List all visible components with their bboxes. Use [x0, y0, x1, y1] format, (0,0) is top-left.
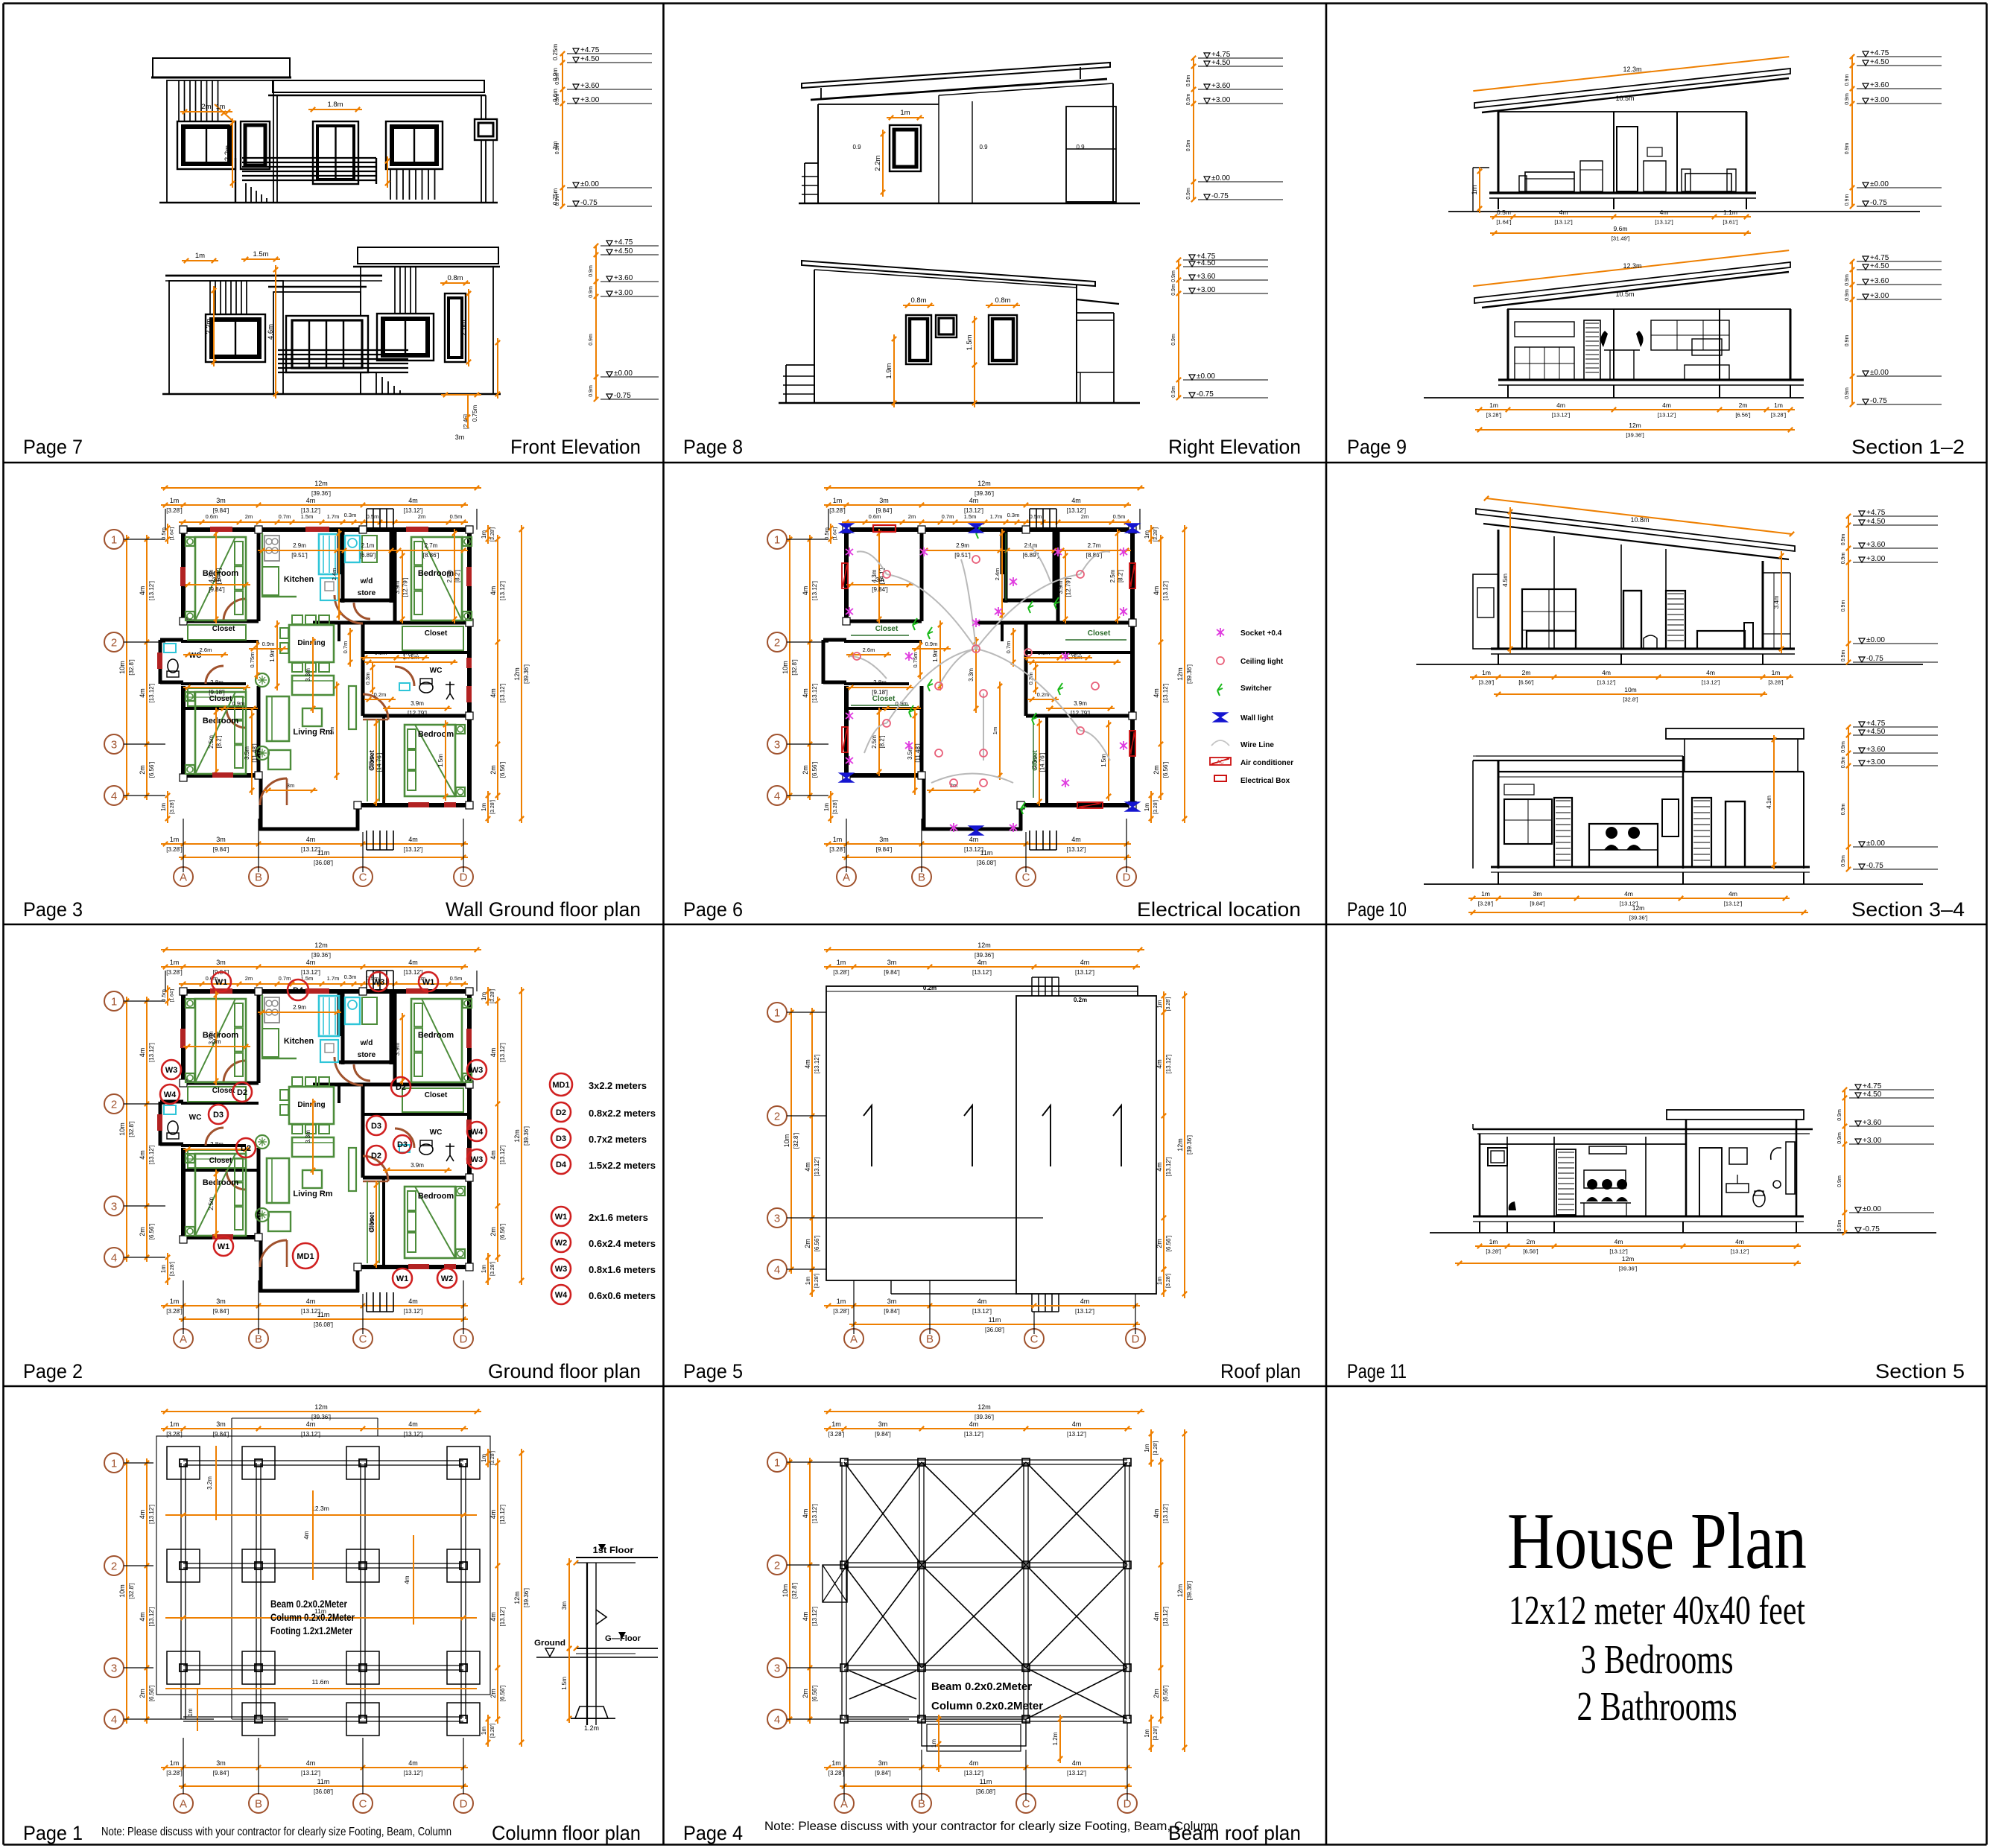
svg-text:[14.76']: [14.76']	[1039, 753, 1045, 772]
svg-text:0.5m: 0.5m	[1030, 513, 1042, 520]
svg-text:Living Rm: Living Rm	[293, 1190, 332, 1198]
svg-text:0.9m: 0.9m	[1186, 188, 1191, 200]
svg-text:0.9m: 0.9m	[1837, 1132, 1842, 1144]
svg-text:2m: 2m	[139, 1689, 146, 1698]
svg-text:A: A	[180, 871, 187, 883]
svg-text:[9.84']: [9.84']	[884, 969, 900, 976]
svg-text:10.5m: 10.5m	[1615, 95, 1634, 102]
svg-text:0.9m: 0.9m	[1841, 741, 1846, 753]
svg-text:[13.12']: [13.12']	[811, 581, 818, 600]
svg-text:1m: 1m	[481, 803, 487, 811]
svg-text:0.7m: 0.7m	[1005, 641, 1012, 654]
svg-text:1m: 1m	[1156, 1000, 1163, 1008]
svg-text:3m: 3m	[1533, 890, 1542, 898]
svg-text:Ground: Ground	[534, 1639, 565, 1648]
svg-text:Page 3: Page 3	[23, 898, 83, 921]
svg-text:0.8m: 0.8m	[995, 296, 1010, 305]
svg-text:0.3m: 0.3m	[1007, 512, 1020, 518]
svg-text:[13.12']: [13.12']	[404, 1770, 423, 1776]
svg-text:w/d: w/d	[360, 577, 373, 585]
svg-text:[36.08']: [36.08']	[985, 1327, 1004, 1333]
svg-text:0.9: 0.9	[979, 144, 988, 150]
svg-text:Bedroom: Bedroom	[418, 730, 454, 739]
svg-text:1.5x2.2 meters: 1.5x2.2 meters	[589, 1160, 656, 1171]
svg-text:3m: 3m	[878, 1759, 888, 1767]
svg-text:4m: 4m	[139, 586, 146, 596]
svg-text:B: B	[918, 871, 925, 883]
svg-text:0.7x2 meters: 0.7x2 meters	[589, 1134, 647, 1145]
svg-text:A: A	[843, 871, 850, 883]
svg-text:Note: Please discuss with your: Note: Please discuss with your contracto…	[764, 1819, 1217, 1833]
svg-text:4m: 4m	[1153, 586, 1160, 596]
svg-text:12m: 12m	[1176, 1584, 1184, 1598]
svg-text:[13.12']: [13.12']	[1162, 684, 1169, 703]
svg-text:[12.79']: [12.79']	[1065, 578, 1071, 597]
svg-text:B: B	[926, 1333, 934, 1345]
svg-text:Closet: Closet	[875, 625, 899, 633]
svg-text:4.5m: 4.5m	[368, 755, 375, 769]
svg-text:D2: D2	[396, 1083, 406, 1092]
svg-text:3m: 3m	[455, 434, 465, 441]
svg-text:[32.8']: [32.8']	[1623, 696, 1638, 703]
svg-text:+4.75: +4.75	[580, 46, 600, 54]
svg-text:1.5m: 1.5m	[964, 513, 977, 520]
svg-text:D4: D4	[293, 986, 304, 995]
svg-text:0.2m: 0.2m	[923, 985, 937, 991]
svg-text:2.4m: 2.4m	[331, 568, 338, 581]
svg-text:4m: 4m	[408, 1759, 418, 1767]
svg-text:0.9m: 0.9m	[1171, 270, 1176, 282]
svg-text:4m: 4m	[1662, 401, 1671, 409]
svg-text:1m: 1m	[170, 836, 180, 843]
svg-text:Kitchen: Kitchen	[284, 575, 314, 584]
svg-text:[12.79']: [12.79']	[402, 578, 408, 597]
svg-text:Closet: Closet	[872, 695, 896, 703]
svg-text:W3: W3	[555, 1265, 568, 1274]
svg-text:[6.56']: [6.56']	[1162, 762, 1169, 778]
svg-text:A: A	[850, 1333, 858, 1345]
svg-text:0.9m: 0.9m	[1171, 386, 1176, 398]
svg-text:2.1m: 2.1m	[1024, 542, 1038, 549]
svg-text:11.6m: 11.6m	[312, 1678, 329, 1686]
svg-text:0.8m: 0.8m	[447, 274, 463, 282]
svg-text:0.2m: 0.2m	[1074, 997, 1087, 1003]
svg-text:-0.75: -0.75	[1863, 1225, 1880, 1233]
svg-text:[13.12']: [13.12']	[1067, 846, 1086, 853]
svg-text:+3.00: +3.00	[1866, 758, 1886, 766]
svg-text:2m: 2m	[418, 513, 425, 520]
svg-text:2.5m: 2.5m	[1109, 569, 1116, 582]
svg-text:3x2.2 meters: 3x2.2 meters	[589, 1080, 647, 1091]
svg-text:1.5m: 1.5m	[966, 334, 974, 350]
svg-text:0.7m: 0.7m	[279, 975, 291, 982]
svg-text:12.3m: 12.3m	[311, 1505, 329, 1512]
svg-text:3.9m: 3.9m	[1074, 700, 1087, 707]
svg-text:2.7m: 2.7m	[1088, 542, 1101, 549]
svg-text:[13.12']: [13.12']	[148, 581, 155, 600]
svg-text:0.9m: 0.9m	[589, 265, 594, 277]
svg-text:4m: 4m	[1706, 669, 1715, 676]
svg-text:4m: 4m	[306, 1420, 316, 1428]
svg-text:+3.60: +3.60	[1863, 1119, 1882, 1127]
svg-text:1m: 1m	[170, 959, 180, 966]
svg-text:Closet: Closet	[425, 629, 448, 638]
svg-text:Electrical Box: Electrical Box	[1240, 777, 1290, 785]
svg-text:4m: 4m	[489, 1150, 497, 1160]
svg-text:Closet: Closet	[212, 625, 235, 633]
svg-text:2.9m: 2.9m	[293, 1004, 306, 1011]
svg-text:Socket +0.4: Socket +0.4	[1240, 629, 1282, 638]
svg-text:[3.28']: [3.28']	[1153, 1727, 1159, 1741]
svg-text:[1.64']: [1.64']	[170, 989, 175, 1003]
svg-text:12m: 12m	[314, 480, 328, 487]
svg-text:[39.36']: [39.36']	[1186, 1135, 1193, 1155]
svg-text:[3.28']: [3.28']	[166, 1431, 183, 1438]
svg-text:0.3m: 0.3m	[344, 512, 357, 518]
svg-text:[3.28']: [3.28']	[1771, 412, 1786, 419]
svg-text:3: 3	[111, 1662, 117, 1674]
svg-text:0.9m: 0.9m	[589, 385, 594, 397]
svg-text:+3.00: +3.00	[1866, 555, 1886, 563]
svg-text:4m: 4m	[1615, 1238, 1623, 1245]
svg-text:[9.84']: [9.84']	[213, 1770, 229, 1776]
svg-text:3m: 3m	[878, 1420, 888, 1428]
svg-text:[13.12']: [13.12']	[1597, 679, 1615, 686]
svg-text:4m: 4m	[1556, 401, 1565, 409]
svg-text:1.9m: 1.9m	[932, 649, 939, 662]
svg-text:Closet: Closet	[209, 695, 232, 703]
svg-text:-0.75: -0.75	[1211, 192, 1229, 200]
svg-text:+3.00: +3.00	[580, 96, 600, 104]
svg-text:2m: 2m	[1522, 669, 1531, 676]
svg-text:4m: 4m	[404, 1575, 411, 1584]
svg-text:12m: 12m	[977, 942, 991, 949]
svg-text:1.5m: 1.5m	[301, 513, 314, 520]
svg-text:0.9m: 0.9m	[1841, 855, 1846, 867]
svg-text:4m: 4m	[408, 959, 418, 966]
svg-text:[32.8']: [32.8']	[128, 1121, 135, 1137]
svg-text:2m: 2m	[1156, 1239, 1163, 1248]
svg-text:[11.48']: [11.48']	[914, 743, 921, 762]
svg-text:12.3m: 12.3m	[1623, 66, 1641, 73]
svg-text:3m: 3m	[216, 1420, 226, 1428]
svg-text:[13.12']: [13.12']	[1162, 581, 1169, 600]
svg-text:[13.12']: [13.12']	[814, 1158, 820, 1177]
svg-text:+3.60: +3.60	[1211, 82, 1231, 90]
svg-text:4.5m: 4.5m	[1502, 574, 1509, 587]
svg-text:Kitchen: Kitchen	[284, 1037, 314, 1046]
svg-text:3m: 3m	[212, 1038, 221, 1045]
svg-text:3.5m: 3.5m	[244, 746, 250, 760]
svg-text:0.9m: 0.9m	[1837, 1220, 1842, 1232]
svg-text:0.9m: 0.9m	[262, 641, 275, 647]
svg-text:2m: 2m	[1153, 765, 1160, 775]
svg-text:1.5m: 1.5m	[561, 1677, 568, 1690]
svg-text:W4: W4	[471, 1128, 484, 1137]
svg-text:0.9m: 0.9m	[1841, 600, 1846, 612]
svg-text:4m: 4m	[489, 586, 497, 596]
svg-text:0.5m: 0.5m	[160, 989, 167, 1002]
svg-text:[11.48']: [11.48']	[251, 743, 258, 762]
svg-text:0.9m: 0.9m	[1845, 194, 1850, 206]
svg-text:Page 11: Page 11	[1347, 1360, 1407, 1382]
svg-text:[3.28']: [3.28']	[1153, 527, 1159, 542]
svg-text:1m: 1m	[805, 1277, 811, 1285]
svg-text:1m: 1m	[831, 1420, 841, 1428]
svg-text:A: A	[180, 1797, 187, 1810]
svg-text:4m: 4m	[802, 1509, 809, 1519]
svg-text:[39.36']: [39.36']	[1629, 915, 1647, 921]
svg-text:[13.12']: [13.12']	[1162, 1504, 1169, 1523]
svg-text:3.3m: 3.3m	[305, 1130, 311, 1143]
svg-text:[6.56']: [6.56']	[499, 1224, 506, 1240]
svg-text:[3.28']: [3.28']	[828, 1431, 845, 1438]
svg-text:Bedroom: Bedroom	[418, 1192, 454, 1201]
svg-text:±0.00: ±0.00	[1866, 839, 1885, 848]
svg-text:[9.18']: [9.18']	[209, 689, 225, 696]
svg-text:0.7m: 0.7m	[342, 641, 349, 654]
svg-text:[39.36']: [39.36']	[523, 1588, 530, 1607]
svg-text:2m: 2m	[802, 1689, 809, 1698]
svg-text:[31.49']: [31.49']	[1612, 235, 1629, 242]
svg-text:2: 2	[111, 1098, 117, 1111]
svg-text:1.5m: 1.5m	[1100, 754, 1107, 767]
svg-text:0.9m: 0.9m	[1038, 650, 1051, 656]
svg-text:[9.84']: [9.84']	[876, 846, 893, 853]
svg-text:4m: 4m	[306, 1298, 316, 1305]
svg-text:4m: 4m	[408, 1420, 418, 1428]
svg-text:+4.50: +4.50	[1870, 262, 1889, 270]
svg-text:1.5m: 1.5m	[253, 250, 268, 258]
svg-text:4m: 4m	[139, 1048, 146, 1058]
svg-text:[9.84']: [9.84']	[872, 586, 888, 593]
svg-text:D3: D3	[371, 1122, 381, 1131]
svg-text:[36.08']: [36.08']	[314, 1788, 333, 1795]
svg-text:[9.84']: [9.84']	[213, 846, 229, 853]
svg-text:11m: 11m	[980, 849, 993, 857]
svg-text:3m: 3m	[287, 782, 294, 789]
svg-text:3m: 3m	[887, 959, 897, 966]
svg-text:D: D	[460, 1333, 468, 1345]
svg-text:0.5m: 0.5m	[1497, 209, 1511, 216]
svg-text:Page 7: Page 7	[23, 436, 83, 458]
svg-text:4m: 4m	[306, 836, 316, 843]
svg-text:[8.86']: [8.86']	[423, 552, 440, 559]
svg-text:2: 2	[774, 1110, 780, 1123]
svg-text:4m: 4m	[489, 1048, 497, 1058]
svg-text:4m: 4m	[1072, 1420, 1082, 1428]
svg-text:12m: 12m	[1176, 1138, 1184, 1152]
svg-text:3m: 3m	[216, 836, 226, 843]
svg-text:Note: Please discuss with your: Note: Please discuss with your contracto…	[101, 1826, 451, 1838]
svg-text:B: B	[255, 1797, 262, 1810]
svg-text:4m: 4m	[139, 688, 146, 698]
svg-text:[13.12']: [13.12']	[972, 969, 992, 976]
svg-text:1m: 1m	[1144, 1444, 1150, 1452]
svg-text:W3: W3	[373, 978, 385, 987]
svg-text:[39.36']: [39.36']	[311, 490, 331, 497]
svg-text:4m: 4m	[1072, 1759, 1082, 1767]
svg-text:W1: W1	[555, 1213, 568, 1222]
svg-text:0.5m: 0.5m	[450, 975, 463, 982]
svg-text:Column 0.2x0.2Meter: Column 0.2x0.2Meter	[931, 1700, 1043, 1712]
svg-text:C: C	[1030, 1333, 1039, 1345]
svg-text:0.5m: 0.5m	[1113, 513, 1126, 520]
svg-text:D3: D3	[397, 1140, 408, 1149]
svg-text:2.7m: 2.7m	[425, 542, 438, 549]
svg-text:[3.61']: [3.61']	[1723, 219, 1737, 226]
svg-text:Switcher: Switcher	[1240, 685, 1272, 693]
svg-text:4m: 4m	[1153, 688, 1160, 698]
svg-text:[39.36']: [39.36']	[523, 664, 530, 684]
svg-text:1m: 1m	[992, 727, 998, 734]
svg-text:3m: 3m	[216, 959, 226, 966]
svg-text:0.9m: 0.9m	[1186, 94, 1191, 106]
svg-text:12x12 meter 40x40 feet: 12x12 meter 40x40 feet	[1509, 1587, 1805, 1633]
svg-text:[14.76']: [14.76']	[375, 753, 382, 772]
svg-text:0.5m: 0.5m	[823, 527, 830, 540]
svg-text:Wall light: Wall light	[1240, 714, 1274, 723]
svg-text:[3.28']: [3.28']	[166, 507, 183, 514]
svg-text:11m: 11m	[980, 1778, 992, 1785]
svg-text:[3.28']: [3.28']	[1479, 679, 1494, 686]
svg-text:1m: 1m	[831, 1759, 841, 1767]
svg-text:12m: 12m	[977, 480, 991, 487]
svg-text:4m: 4m	[969, 836, 979, 843]
svg-text:1m: 1m	[837, 1298, 846, 1305]
svg-text:[1.64']: [1.64']	[170, 527, 175, 541]
svg-text:4: 4	[774, 1713, 780, 1726]
svg-text:1m: 1m	[170, 1420, 180, 1428]
svg-text:[36.08']: [36.08']	[314, 1321, 333, 1328]
svg-text:4m: 4m	[139, 1612, 146, 1622]
svg-text:2m: 2m	[489, 765, 497, 775]
svg-text:1m: 1m	[170, 1298, 180, 1305]
svg-text:0.9m: 0.9m	[1841, 757, 1846, 769]
svg-text:[6.56']: [6.56']	[811, 1686, 818, 1702]
svg-text:4m: 4m	[489, 1612, 497, 1622]
svg-text:[13.12']: [13.12']	[499, 1146, 506, 1165]
svg-text:1m: 1m	[481, 1454, 487, 1462]
svg-text:1.5m: 1.5m	[437, 754, 444, 767]
svg-text:W2: W2	[441, 1274, 454, 1283]
svg-text:2m: 2m	[245, 513, 253, 520]
svg-text:3.9m: 3.9m	[411, 700, 424, 707]
svg-text:1.8m: 1.8m	[327, 101, 343, 109]
svg-text:D: D	[460, 1797, 468, 1810]
svg-text:[9.84']: [9.84']	[213, 1308, 229, 1315]
svg-text:4m: 4m	[977, 959, 987, 966]
svg-text:[8.2']: [8.2']	[1117, 570, 1124, 582]
svg-text:1m: 1m	[481, 1727, 487, 1735]
svg-text:[3.28']: [3.28']	[833, 969, 849, 976]
svg-text:2.6m: 2.6m	[863, 647, 875, 653]
svg-text:0.75m: 0.75m	[912, 652, 919, 668]
svg-text:[6.56']: [6.56']	[499, 1686, 506, 1702]
svg-text:+3.60: +3.60	[1866, 746, 1886, 754]
svg-text:0.2m: 0.2m	[374, 691, 387, 698]
svg-text:Page 5: Page 5	[683, 1360, 743, 1382]
svg-text:Front Elevation: Front Elevation	[510, 436, 641, 458]
svg-text:3: 3	[774, 1662, 780, 1674]
svg-text:4m: 4m	[802, 586, 809, 596]
svg-text:-0.75: -0.75	[1870, 199, 1887, 207]
svg-text:[3.28']: [3.28']	[166, 1770, 183, 1776]
svg-text:[13.12']: [13.12']	[1075, 1308, 1094, 1315]
svg-text:4m: 4m	[969, 497, 979, 504]
svg-text:4m: 4m	[1735, 1238, 1744, 1245]
svg-text:1m: 1m	[1774, 401, 1783, 409]
svg-text:0.5m: 0.5m	[367, 513, 379, 520]
svg-text:[36.08']: [36.08']	[977, 860, 996, 866]
svg-text:[32.8']: [32.8']	[128, 1583, 135, 1599]
svg-text:1m: 1m	[170, 497, 180, 504]
svg-text:[3.28']: [3.28']	[490, 1451, 495, 1465]
svg-text:W1: W1	[215, 978, 228, 987]
svg-text:0.75m: 0.75m	[249, 652, 256, 668]
svg-text:B: B	[255, 1333, 262, 1345]
svg-text:4: 4	[111, 790, 117, 802]
svg-text:WC: WC	[430, 1128, 443, 1137]
svg-text:4m: 4m	[306, 1759, 316, 1767]
svg-text:[13.12']: [13.12']	[811, 1607, 818, 1626]
svg-text:0.9m: 0.9m	[1841, 553, 1846, 565]
svg-text:9.6m: 9.6m	[1614, 225, 1628, 232]
svg-text:0.9m: 0.9m	[1845, 335, 1850, 347]
svg-text:+4.50: +4.50	[1870, 58, 1889, 66]
svg-text:1m: 1m	[1489, 1238, 1498, 1245]
svg-text:Column 0.2x0.2Meter: Column 0.2x0.2Meter	[270, 1611, 355, 1623]
svg-text:House Plan: House Plan	[1507, 1497, 1807, 1586]
svg-text:1.7m: 1.7m	[990, 513, 1003, 520]
svg-text:3.9m: 3.9m	[1057, 580, 1064, 594]
svg-text:0.9m: 0.9m	[1841, 534, 1846, 546]
svg-text:1: 1	[774, 1006, 780, 1019]
svg-text:[13.12']: [13.12']	[1731, 1248, 1749, 1255]
svg-text:Closet: Closet	[1088, 629, 1111, 638]
svg-text:1m: 1m	[481, 1265, 487, 1273]
svg-text:0.6x2.4 meters: 0.6x2.4 meters	[589, 1238, 656, 1249]
svg-text:1.7m: 1.7m	[327, 975, 340, 982]
svg-text:4m: 4m	[306, 959, 316, 966]
svg-text:[13.12']: [13.12']	[811, 684, 818, 703]
svg-text:1.2m: 1.2m	[584, 1724, 599, 1732]
svg-text:[13.12']: [13.12']	[1165, 1158, 1172, 1177]
svg-text:3m: 3m	[212, 577, 221, 583]
svg-text:+4.75: +4.75	[1211, 51, 1231, 59]
svg-text:±0.00: ±0.00	[1866, 636, 1885, 644]
svg-text:[13.12']: [13.12']	[301, 1770, 320, 1776]
svg-text:4m: 4m	[977, 1298, 987, 1305]
svg-text:2m: 2m	[245, 975, 253, 982]
svg-text:Bedroom: Bedroom	[203, 717, 239, 725]
svg-text:AC: AC	[1217, 760, 1224, 765]
svg-text:4m: 4m	[489, 1510, 497, 1520]
svg-text:[13.12']: [13.12']	[404, 846, 423, 853]
svg-text:[9.84']: [9.84']	[875, 1770, 891, 1776]
svg-text:2m: 2m	[908, 513, 916, 520]
svg-text:[13.12']: [13.12']	[1702, 679, 1720, 686]
svg-text:3.3m: 3.3m	[305, 668, 311, 682]
svg-text:+3.00: +3.00	[1870, 292, 1889, 300]
svg-text:[12.79']: [12.79']	[408, 710, 427, 717]
svg-text:[3.28']: [3.28']	[1166, 997, 1171, 1012]
svg-text:2m: 2m	[804, 1239, 811, 1248]
svg-text:W3: W3	[165, 1066, 178, 1075]
svg-text:[12.79']: [12.79']	[1071, 710, 1090, 717]
svg-text:2: 2	[111, 636, 117, 649]
svg-text:2m: 2m	[802, 765, 809, 775]
